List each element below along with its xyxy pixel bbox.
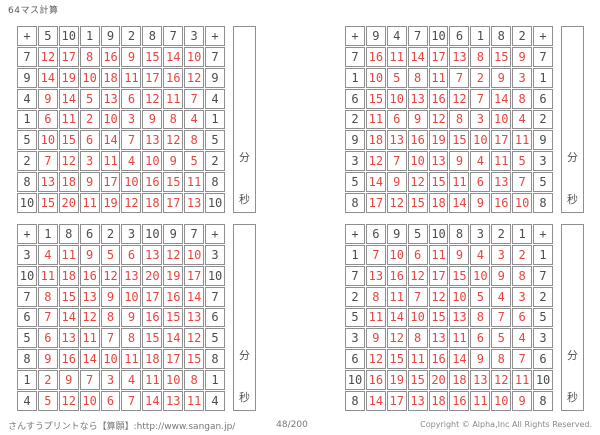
answer-cell: 10 (366, 68, 386, 88)
answer-cell: 6 (387, 110, 407, 130)
seconds-label: 秒 (562, 191, 583, 207)
column-header-cell: 3 (121, 224, 141, 244)
footer-copyright: Copyright © Alpha,Inc All Rights Reserve… (420, 420, 592, 429)
answer-cell: 19 (163, 266, 183, 286)
column-header-cell: 7 (408, 26, 428, 46)
answer-cell: 20 (59, 193, 79, 213)
row-operand-repeat-cell: 7 (205, 287, 225, 307)
answer-cell: 9 (121, 47, 141, 67)
answer-cell: 9 (38, 349, 58, 369)
plus-corner-cell: + (17, 224, 37, 244)
answer-cell: 9 (449, 151, 469, 171)
answer-cell: 11 (491, 151, 511, 171)
column-header-cell: 10 (142, 224, 162, 244)
answer-cell: 12 (101, 266, 121, 286)
row-operand-repeat-cell: 10 (205, 266, 225, 286)
answer-cell: 11 (101, 151, 121, 171)
answer-cell: 4 (184, 110, 204, 130)
column-header-cell: 10 (429, 26, 449, 46)
answer-cell: 12 (184, 328, 204, 348)
answer-cell: 10 (470, 266, 490, 286)
column-header-cell: 6 (80, 224, 100, 244)
answer-cell: 4 (512, 328, 532, 348)
answer-cell: 10 (491, 110, 511, 130)
answer-cell: 12 (80, 308, 100, 328)
answer-cell: 10 (80, 68, 100, 88)
row-operand-repeat-cell: 1 (533, 68, 553, 88)
column-header-cell: 7 (163, 26, 183, 46)
answer-cell: 11 (184, 391, 204, 411)
answer-cell: 17 (429, 47, 449, 67)
answer-cell: 13 (387, 130, 407, 150)
answer-cell: 11 (142, 370, 162, 390)
column-header-cell: 4 (387, 26, 407, 46)
answer-cell: 12 (121, 193, 141, 213)
seconds-label: 秒 (234, 389, 255, 405)
answer-cell: 8 (491, 349, 511, 369)
answer-cell: 11 (387, 47, 407, 67)
answer-cell: 11 (449, 172, 469, 192)
answer-cell: 13 (80, 287, 100, 307)
answer-cell: 6 (80, 130, 100, 150)
answer-cell: 12 (38, 47, 58, 67)
answer-cell: 9 (408, 110, 428, 130)
answer-cell: 15 (163, 172, 183, 192)
plus-corner-cell: + (533, 224, 553, 244)
answer-cell: 7 (38, 151, 58, 171)
answer-cell: 15 (429, 172, 449, 192)
answer-cell: 2 (512, 245, 532, 265)
row-operand-cell: 2 (345, 287, 365, 307)
answer-cell: 6 (408, 245, 428, 265)
seconds-label: 秒 (562, 389, 583, 405)
answer-cell: 10 (121, 287, 141, 307)
row-operand-repeat-cell: 8 (205, 172, 225, 192)
row-operand-cell: 5 (345, 172, 365, 192)
answer-cell: 17 (163, 349, 183, 369)
answer-cell: 3 (80, 151, 100, 171)
answer-cell: 15 (142, 47, 162, 67)
answer-cell: 10 (512, 193, 532, 213)
answer-cell: 12 (366, 151, 386, 171)
row-operand-cell: 4 (17, 391, 37, 411)
row-operand-cell: 7 (17, 47, 37, 67)
row-operand-repeat-cell: 2 (533, 110, 553, 130)
row-operand-cell: 7 (345, 47, 365, 67)
calc-grid-bottom-right: +695108321+17106119432171316121715109872… (345, 224, 584, 411)
answer-cell: 19 (429, 130, 449, 150)
row-operand-cell: 5 (345, 308, 365, 328)
answer-cell: 7 (366, 245, 386, 265)
calc-grid-table: +695108321+17106119432171316121715109872… (345, 224, 553, 411)
row-operand-cell: 9 (17, 68, 37, 88)
row-operand-cell: 2 (17, 151, 37, 171)
answer-cell: 8 (366, 287, 386, 307)
answer-cell: 12 (59, 151, 79, 171)
answer-cell: 16 (366, 370, 386, 390)
row-operand-repeat-cell: 8 (205, 349, 225, 369)
answer-cell: 16 (101, 47, 121, 67)
answer-cell: 3 (512, 68, 532, 88)
row-operand-repeat-cell: 5 (205, 328, 225, 348)
answer-cell: 11 (59, 245, 79, 265)
column-header-cell: 10 (59, 26, 79, 46)
answer-cell: 16 (387, 266, 407, 286)
answer-cell: 13 (429, 328, 449, 348)
column-header-cell: 6 (366, 224, 386, 244)
answer-cell: 13 (163, 391, 183, 411)
plus-corner-cell: + (205, 26, 225, 46)
answer-cell: 11 (121, 349, 141, 369)
row-operand-cell: 8 (345, 193, 365, 213)
answer-cell: 6 (512, 308, 532, 328)
column-header-cell: 2 (101, 224, 121, 244)
answer-cell: 9 (101, 287, 121, 307)
answer-cell: 14 (387, 308, 407, 328)
answer-cell: 16 (163, 68, 183, 88)
answer-cell: 10 (163, 370, 183, 390)
answer-cell: 12 (429, 287, 449, 307)
answer-cell: 13 (184, 193, 204, 213)
answer-cell: 14 (491, 89, 511, 109)
answer-cell: 9 (491, 68, 511, 88)
column-header-cell: 8 (491, 26, 511, 46)
answer-cell: 6 (38, 328, 58, 348)
answer-cell: 8 (38, 287, 58, 307)
row-operand-repeat-cell: 3 (205, 245, 225, 265)
answer-cell: 5 (80, 89, 100, 109)
answer-cell: 10 (101, 110, 121, 130)
answer-cell: 3 (121, 110, 141, 130)
answer-cell: 4 (470, 151, 490, 171)
row-operand-repeat-cell: 2 (205, 151, 225, 171)
answer-cell: 11 (121, 68, 141, 88)
row-operand-repeat-cell: 5 (533, 172, 553, 192)
row-operand-repeat-cell: 7 (533, 47, 553, 67)
answer-cell: 13 (101, 89, 121, 109)
answer-cell: 4 (491, 287, 511, 307)
answer-cell: 16 (491, 193, 511, 213)
answer-cell: 15 (142, 328, 162, 348)
answer-cell: 12 (408, 266, 428, 286)
answer-cell: 8 (512, 266, 532, 286)
column-header-cell: 5 (408, 224, 428, 244)
row-operand-cell: 10 (17, 266, 37, 286)
answer-cell: 9 (80, 245, 100, 265)
answer-cell: 8 (101, 308, 121, 328)
answer-cell: 8 (184, 370, 204, 390)
answer-cell: 8 (408, 68, 428, 88)
column-header-cell: 9 (163, 224, 183, 244)
answer-cell: 9 (512, 391, 532, 411)
answer-cell: 6 (101, 391, 121, 411)
answer-cell: 8 (184, 130, 204, 150)
answer-cell: 19 (101, 193, 121, 213)
answer-cell: 11 (387, 287, 407, 307)
answer-cell: 4 (38, 245, 58, 265)
time-record-box: 分 秒 (561, 224, 584, 411)
answer-cell: 7 (387, 151, 407, 171)
answer-cell: 16 (449, 391, 469, 411)
answer-cell: 16 (142, 308, 162, 328)
row-operand-repeat-cell: 7 (205, 47, 225, 67)
row-operand-repeat-cell: 1 (205, 370, 225, 390)
calc-grid-table: +510192873+71217816915141079141910181117… (17, 26, 225, 213)
answer-cell: 11 (429, 245, 449, 265)
column-header-cell: 2 (491, 224, 511, 244)
answer-cell: 9 (449, 245, 469, 265)
time-record-box: 分 秒 (233, 26, 256, 213)
answer-cell: 17 (366, 193, 386, 213)
row-operand-cell: 1 (17, 110, 37, 130)
row-operand-repeat-cell: 3 (533, 328, 553, 348)
answer-cell: 14 (163, 328, 183, 348)
column-header-cell: 2 (512, 26, 532, 46)
row-operand-cell: 1 (345, 245, 365, 265)
answer-cell: 16 (408, 130, 428, 150)
column-header-cell: 5 (38, 26, 58, 46)
answer-cell: 9 (121, 308, 141, 328)
row-operand-repeat-cell: 8 (533, 193, 553, 213)
plus-corner-cell: + (345, 224, 365, 244)
answer-cell: 14 (142, 391, 162, 411)
minutes-label: 分 (234, 347, 255, 363)
column-header-cell: 7 (184, 224, 204, 244)
answer-cell: 16 (366, 47, 386, 67)
answer-cell: 7 (121, 391, 141, 411)
answer-cell: 11 (408, 349, 428, 369)
answer-cell: 17 (184, 266, 204, 286)
answer-cell: 13 (408, 391, 428, 411)
answer-cell: 18 (59, 266, 79, 286)
answer-cell: 15 (449, 266, 469, 286)
answer-cell: 14 (449, 193, 469, 213)
answer-cell: 8 (163, 110, 183, 130)
calc-grid-top-right: +947106182+71611141713815971105811729316… (345, 26, 584, 213)
answer-cell: 15 (408, 370, 428, 390)
answer-cell: 19 (59, 68, 79, 88)
answer-cell: 10 (491, 391, 511, 411)
answer-cell: 12 (387, 328, 407, 348)
plus-corner-cell: + (345, 26, 365, 46)
answer-cell: 19 (387, 370, 407, 390)
row-operand-cell: 9 (345, 130, 365, 150)
answer-cell: 7 (38, 308, 58, 328)
answer-cell: 12 (59, 391, 79, 411)
answer-cell: 13 (408, 89, 428, 109)
column-header-cell: 8 (59, 224, 79, 244)
answer-cell: 12 (408, 172, 428, 192)
answer-cell: 17 (59, 47, 79, 67)
row-operand-cell: 10 (17, 193, 37, 213)
answer-cell: 18 (449, 370, 469, 390)
row-operand-cell: 7 (17, 287, 37, 307)
answer-cell: 13 (470, 370, 490, 390)
answer-cell: 8 (449, 110, 469, 130)
answer-cell: 7 (470, 89, 490, 109)
answer-cell: 10 (408, 308, 428, 328)
answer-cell: 15 (491, 47, 511, 67)
answer-cell: 7 (80, 370, 100, 390)
answer-cell: 13 (449, 308, 469, 328)
answer-cell: 16 (429, 89, 449, 109)
answer-cell: 12 (491, 370, 511, 390)
answer-cell: 4 (121, 151, 141, 171)
answer-cell: 2 (38, 370, 58, 390)
answer-cell: 14 (366, 391, 386, 411)
answer-cell: 11 (80, 193, 100, 213)
answer-cell: 2 (470, 68, 490, 88)
answer-cell: 6 (121, 89, 141, 109)
column-header-cell: 1 (80, 26, 100, 46)
column-header-cell: 2 (121, 26, 141, 46)
answer-cell: 11 (470, 391, 490, 411)
answer-cell: 15 (59, 130, 79, 150)
calc-grid-top-left: +510192873+71217816915141079141910181117… (17, 26, 256, 213)
answer-cell: 7 (121, 130, 141, 150)
answer-cell: 10 (184, 245, 204, 265)
row-operand-repeat-cell: 1 (533, 245, 553, 265)
column-header-cell: 3 (470, 224, 490, 244)
row-operand-cell: 8 (17, 349, 37, 369)
answer-cell: 16 (80, 266, 100, 286)
answer-cell: 7 (449, 68, 469, 88)
row-operand-cell: 3 (345, 151, 365, 171)
column-header-cell: 8 (449, 224, 469, 244)
row-operand-cell: 1 (345, 68, 365, 88)
answer-cell: 7 (184, 89, 204, 109)
answer-cell: 14 (59, 308, 79, 328)
answer-cell: 10 (142, 151, 162, 171)
answer-cell: 15 (184, 349, 204, 369)
page-title: 64マス計算 (8, 3, 58, 16)
answer-cell: 10 (38, 130, 58, 150)
answer-cell: 13 (142, 245, 162, 265)
row-operand-repeat-cell: 10 (205, 193, 225, 213)
answer-cell: 13 (491, 172, 511, 192)
answer-cell: 13 (366, 266, 386, 286)
plus-corner-cell: + (17, 26, 37, 46)
answer-cell: 15 (449, 130, 469, 150)
answer-cell: 8 (470, 308, 490, 328)
answer-cell: 18 (142, 193, 162, 213)
column-header-cell: 3 (184, 26, 204, 46)
answer-cell: 17 (142, 287, 162, 307)
answer-cell: 7 (512, 172, 532, 192)
answer-cell: 8 (80, 47, 100, 67)
minutes-label: 分 (234, 149, 255, 165)
answer-cell: 5 (38, 391, 58, 411)
column-header-cell: 1 (512, 224, 532, 244)
answer-cell: 17 (387, 391, 407, 411)
answer-cell: 11 (184, 172, 204, 192)
footer-page-number: 48/200 (276, 420, 308, 430)
answer-cell: 5 (491, 328, 511, 348)
row-operand-repeat-cell: 10 (533, 370, 553, 390)
answer-cell: 18 (429, 391, 449, 411)
answer-cell: 9 (142, 110, 162, 130)
column-header-cell: 6 (449, 26, 469, 46)
answer-cell: 7 (101, 328, 121, 348)
row-operand-repeat-cell: 1 (205, 110, 225, 130)
answer-cell: 14 (184, 287, 204, 307)
answer-cell: 16 (59, 349, 79, 369)
row-operand-cell: 2 (345, 110, 365, 130)
row-operand-cell: 3 (345, 328, 365, 348)
answer-cell: 3 (491, 245, 511, 265)
answer-cell: 3 (512, 287, 532, 307)
answer-cell: 14 (101, 130, 121, 150)
answer-cell: 11 (366, 110, 386, 130)
answer-cell: 4 (470, 245, 490, 265)
row-operand-cell: 6 (17, 308, 37, 328)
answer-cell: 17 (101, 172, 121, 192)
row-operand-repeat-cell: 9 (533, 130, 553, 150)
answer-cell: 3 (101, 370, 121, 390)
answer-cell: 9 (470, 193, 490, 213)
answer-cell: 9 (512, 47, 532, 67)
row-operand-repeat-cell: 4 (205, 391, 225, 411)
answer-cell: 12 (163, 130, 183, 150)
row-operand-cell: 5 (17, 328, 37, 348)
column-header-cell: 9 (101, 26, 121, 46)
answer-cell: 9 (387, 172, 407, 192)
answer-cell: 9 (491, 266, 511, 286)
answer-cell: 14 (163, 47, 183, 67)
answer-cell: 15 (387, 349, 407, 369)
answer-cell: 9 (163, 151, 183, 171)
answer-cell: 18 (59, 172, 79, 192)
row-operand-repeat-cell: 9 (205, 68, 225, 88)
time-record-box: 分 秒 (561, 26, 584, 213)
answer-cell: 10 (387, 89, 407, 109)
answer-cell: 18 (142, 349, 162, 369)
answer-cell: 18 (366, 130, 386, 150)
answer-cell: 5 (512, 151, 532, 171)
answer-cell: 11 (80, 328, 100, 348)
answer-cell: 12 (163, 245, 183, 265)
column-header-cell: 10 (429, 224, 449, 244)
answer-cell: 14 (449, 349, 469, 369)
calc-grid-table: +947106182+71611141713815971105811729316… (345, 26, 553, 213)
row-operand-repeat-cell: 2 (533, 287, 553, 307)
column-header-cell: 1 (470, 26, 490, 46)
plus-corner-cell: + (533, 26, 553, 46)
answer-cell: 11 (449, 328, 469, 348)
answer-cell: 14 (80, 349, 100, 369)
answer-cell: 9 (59, 370, 79, 390)
answer-cell: 10 (387, 245, 407, 265)
answer-cell: 12 (366, 349, 386, 369)
row-operand-repeat-cell: 6 (533, 349, 553, 369)
answer-cell: 11 (512, 130, 532, 150)
answer-cell: 10 (470, 130, 490, 150)
answer-cell: 12 (142, 89, 162, 109)
answer-cell: 2 (80, 110, 100, 130)
answer-cell: 14 (408, 47, 428, 67)
answer-cell: 8 (121, 328, 141, 348)
answer-cell: 8 (408, 328, 428, 348)
row-operand-cell: 4 (17, 89, 37, 109)
answer-cell: 15 (38, 193, 58, 213)
row-operand-cell: 10 (345, 370, 365, 390)
row-operand-cell: 1 (17, 370, 37, 390)
answer-cell: 14 (59, 89, 79, 109)
seconds-label: 秒 (234, 191, 255, 207)
answer-cell: 7 (491, 308, 511, 328)
row-operand-cell: 8 (17, 172, 37, 192)
answer-cell: 9 (470, 349, 490, 369)
